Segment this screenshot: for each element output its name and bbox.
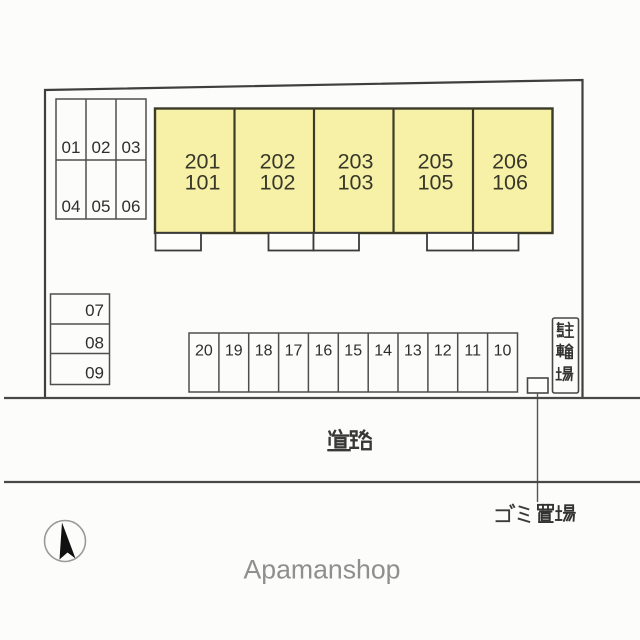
svg-text:03: 03 — [122, 138, 141, 157]
svg-text:11: 11 — [464, 343, 481, 360]
svg-text:07: 07 — [85, 301, 104, 320]
svg-text:Apamanshop: Apamanshop — [244, 555, 401, 585]
svg-text:18: 18 — [255, 343, 273, 360]
svg-text:14: 14 — [374, 343, 392, 360]
svg-text:05: 05 — [92, 197, 111, 216]
svg-text:10: 10 — [494, 343, 512, 360]
svg-text:19: 19 — [225, 343, 243, 360]
svg-text:08: 08 — [85, 334, 104, 353]
svg-text:16: 16 — [315, 343, 333, 360]
svg-text:02: 02 — [92, 138, 111, 157]
svg-text:105: 105 — [418, 171, 454, 195]
svg-text:09: 09 — [85, 364, 104, 383]
svg-text:101: 101 — [185, 171, 221, 195]
svg-text:01: 01 — [62, 138, 81, 157]
svg-text:12: 12 — [434, 343, 452, 360]
svg-text:04: 04 — [62, 197, 81, 216]
svg-text:13: 13 — [404, 343, 422, 360]
svg-text:103: 103 — [338, 171, 374, 195]
svg-text:06: 06 — [122, 197, 141, 216]
svg-text:106: 106 — [492, 171, 528, 195]
svg-text:20: 20 — [195, 343, 213, 360]
svg-text:17: 17 — [285, 343, 303, 360]
svg-text:15: 15 — [344, 343, 362, 360]
svg-text:102: 102 — [260, 171, 296, 195]
